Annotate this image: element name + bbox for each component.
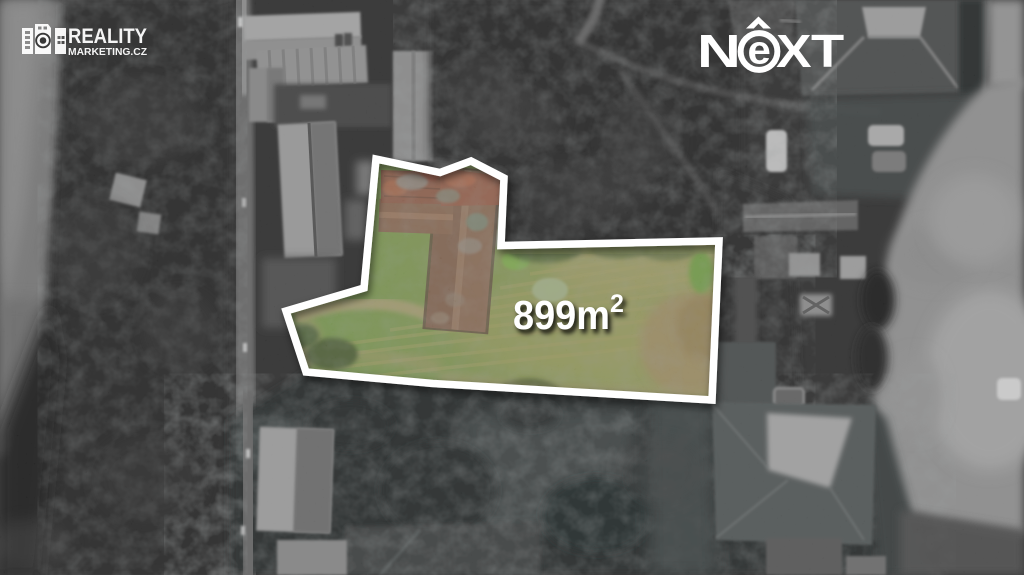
svg-text:899m: 899m (513, 292, 610, 338)
svg-text:N: N (697, 26, 741, 77)
svg-text:REALITY: REALITY (68, 25, 147, 48)
svg-text:2: 2 (610, 290, 624, 318)
svg-text:X: X (776, 25, 812, 77)
svg-text:MARKETING.CZ: MARKETING.CZ (68, 47, 147, 58)
svg-text:e: e (748, 27, 771, 72)
svg-text:T: T (811, 25, 844, 77)
